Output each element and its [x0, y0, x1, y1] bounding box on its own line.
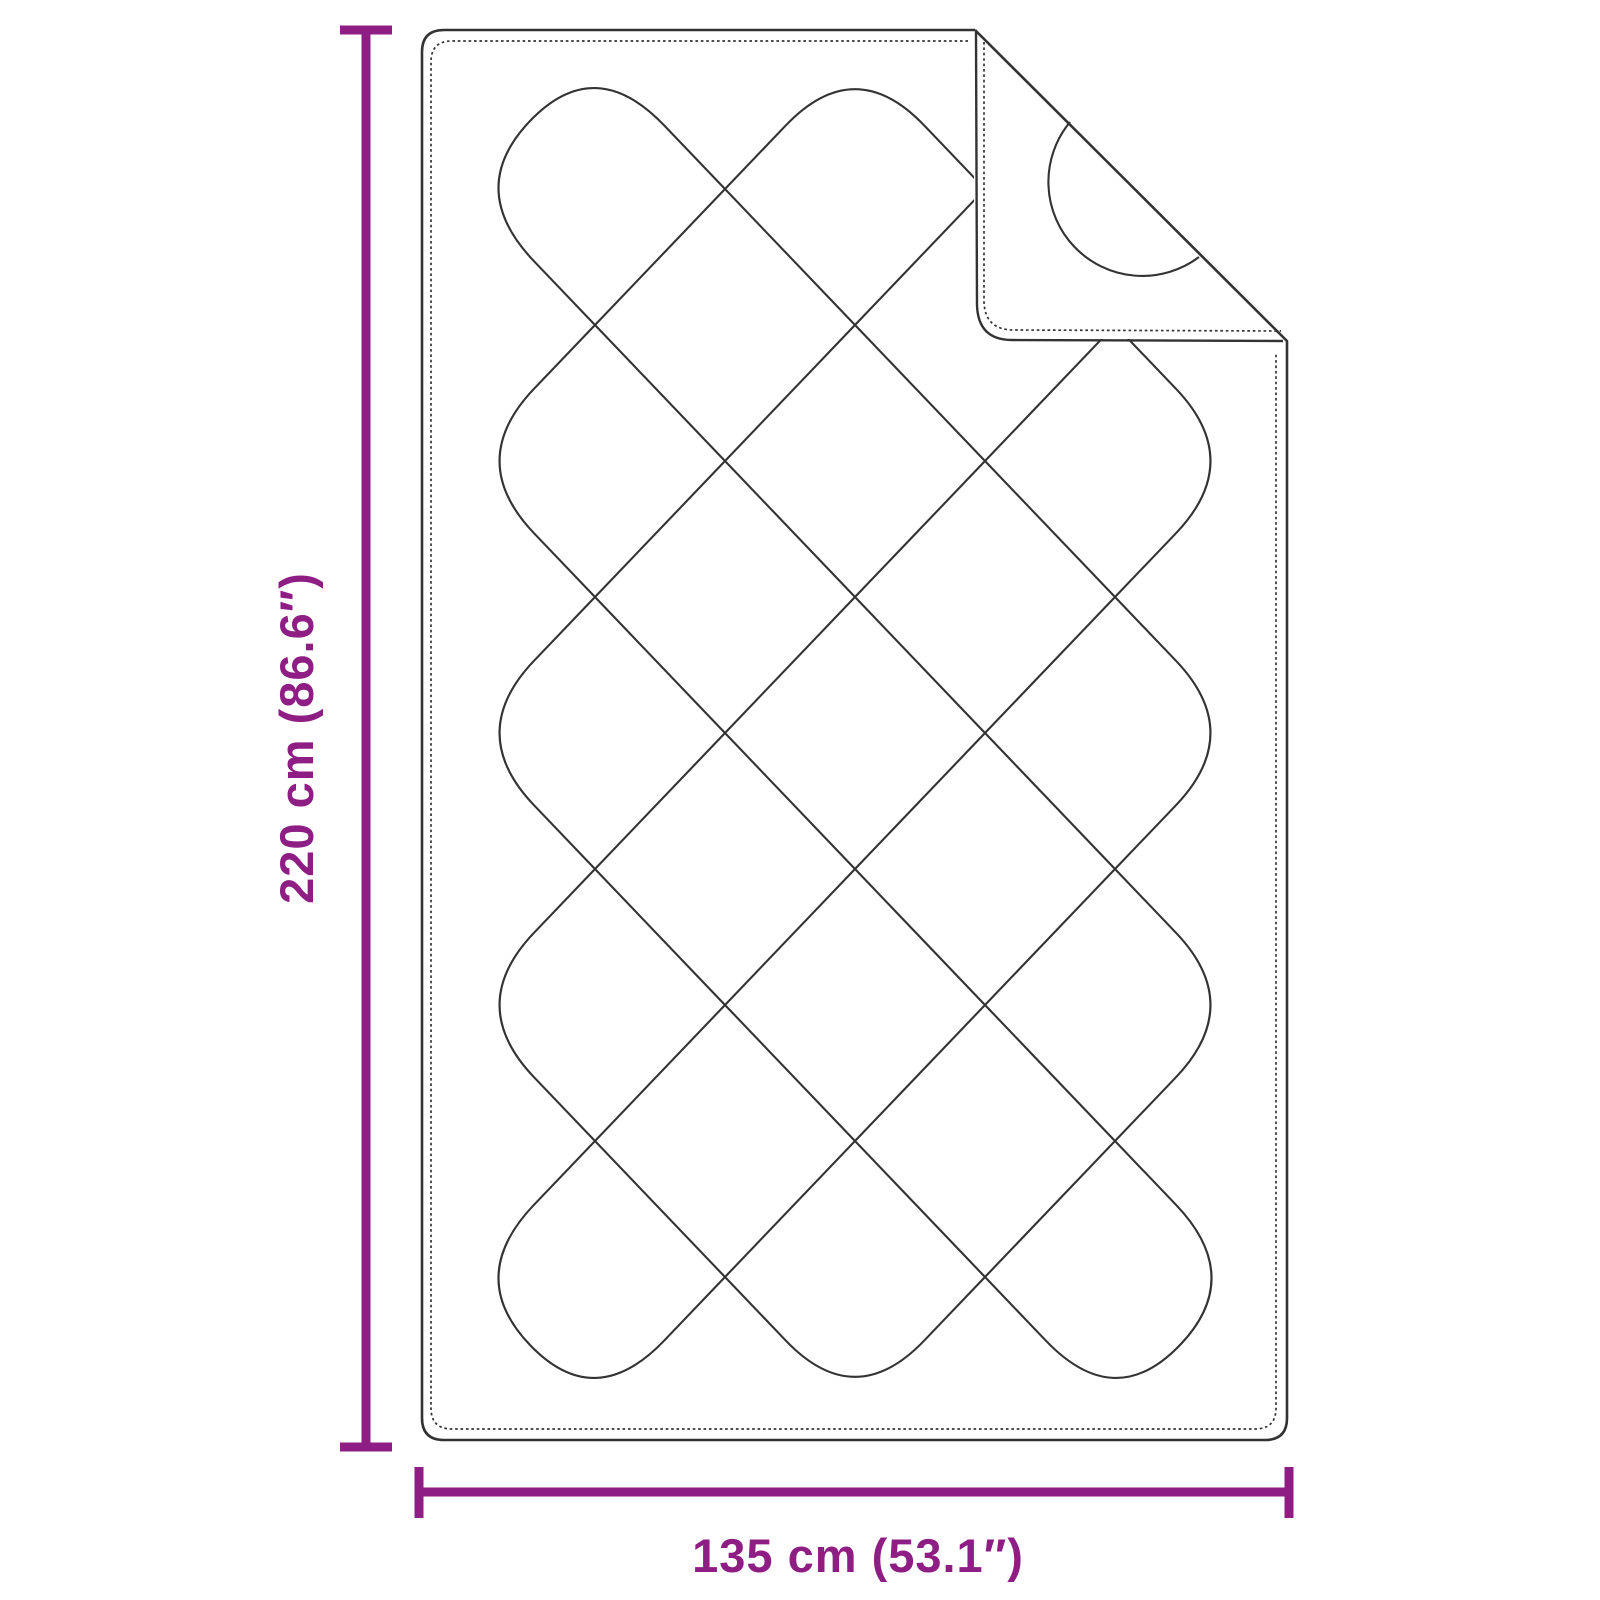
quilting-stitch-lines	[498, 88, 1211, 1378]
stitch-border	[431, 41, 1276, 1429]
fold-flap-quilt-arc	[1048, 122, 1199, 276]
blanket-dimension-diagram: 220 cm (86.6″) 135 cm (53.1″)	[0, 0, 1600, 1600]
quilting-pattern	[498, 88, 1211, 1378]
blanket-outline	[422, 30, 1287, 1440]
height-dimension-label: 220 cm (86.6″)	[270, 572, 323, 904]
height-dimension: 220 cm (86.6″)	[270, 30, 392, 1447]
width-dimension-label: 135 cm (53.1″)	[692, 1529, 1024, 1582]
width-dimension: 135 cm (53.1″)	[419, 1467, 1289, 1582]
